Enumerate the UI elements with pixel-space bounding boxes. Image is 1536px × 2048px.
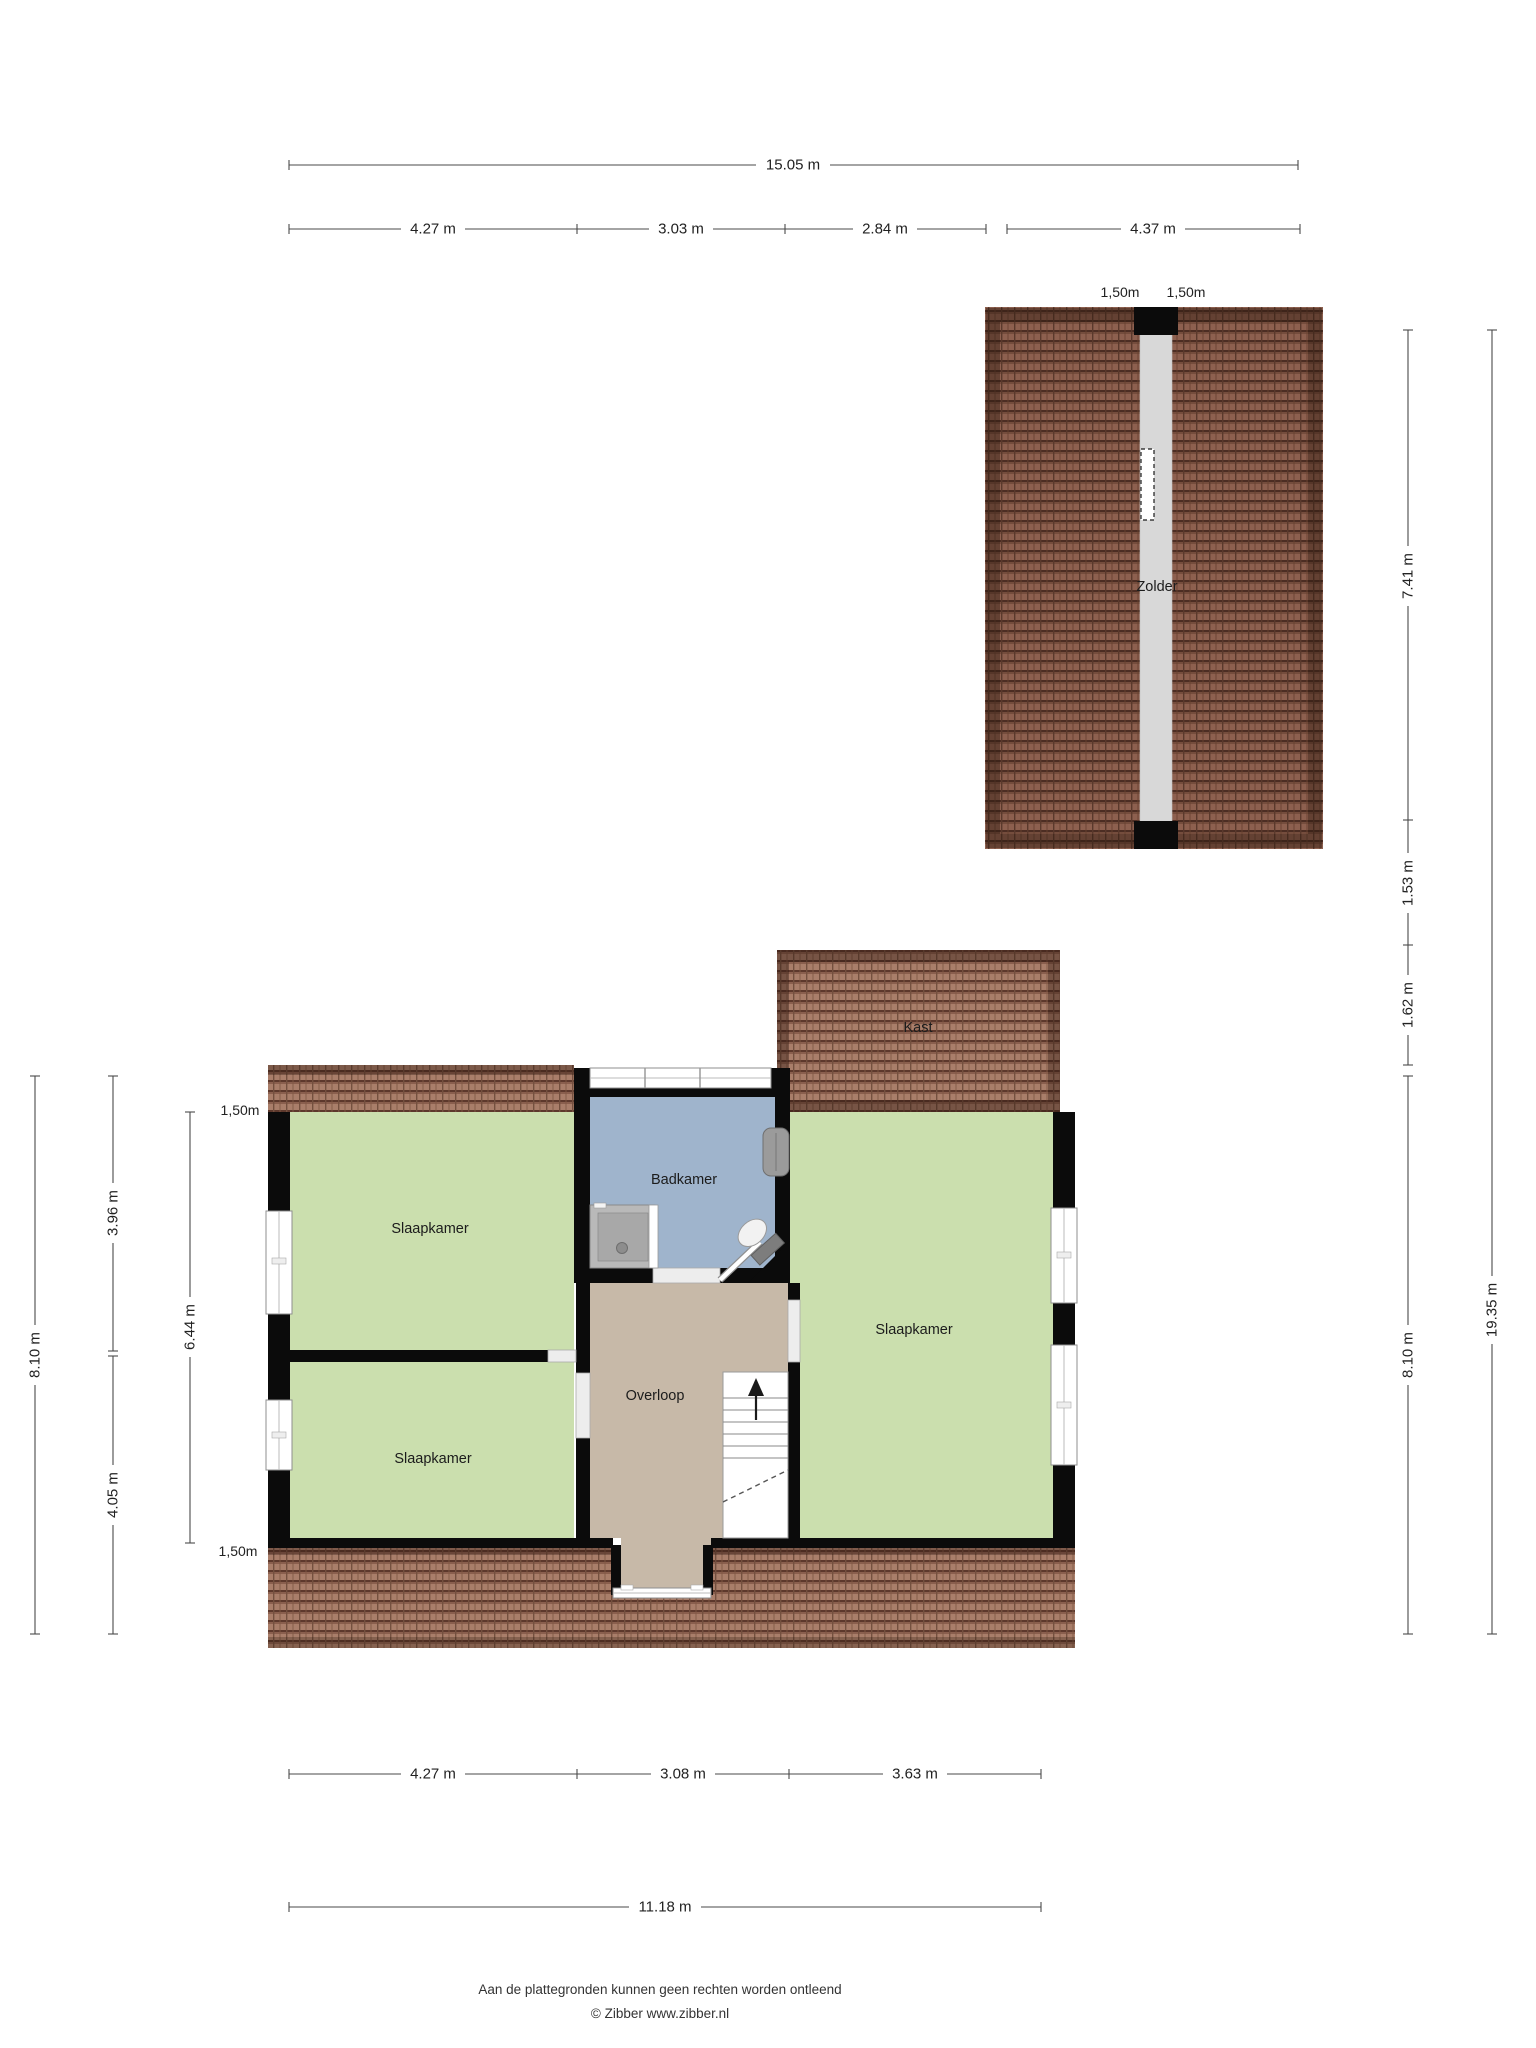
dim-label-left-inner: 6.44 m	[182, 1304, 199, 1350]
roof-window-dashed	[1141, 449, 1154, 520]
window-badkamer-top	[590, 1068, 771, 1088]
room-label-badkamer: Badkamer	[651, 1172, 717, 1188]
footer-disclaimer: Aan de plattegronden kunnen geen rechten…	[478, 1982, 841, 1997]
dim-label-top-seg3: 2.84 m	[862, 221, 908, 238]
window	[266, 1400, 292, 1470]
zolder-walkable-strip	[1140, 333, 1172, 823]
dim-label-bottom-seg1: 4.27 m	[410, 1766, 456, 1783]
wall-segment	[576, 1438, 590, 1545]
floorplan-page: 15.05 m 4.27 m 3.03 m 2.84 m 4.37 m 1,50…	[0, 0, 1536, 2048]
room-label-overloop: Overloop	[626, 1388, 685, 1404]
footer-credit: © Zibber www.zibber.nl	[591, 2006, 729, 2021]
wall-segment	[1053, 1112, 1075, 1208]
shower	[590, 1203, 658, 1268]
wall-segment	[268, 1470, 290, 1545]
wall-segment	[268, 1112, 290, 1211]
dim-label-total-width: 15.05 m	[766, 157, 820, 174]
dimensions-right: 7.41 m 1.53 m 1.62 m 8.10 m 19.35 m	[1399, 330, 1501, 1634]
stairs	[723, 1372, 788, 1538]
dim-label-right-seg2: 1.53 m	[1400, 860, 1417, 906]
zolder-knee-label-right: 1,50m	[1167, 284, 1206, 300]
wall-segment	[576, 1283, 590, 1373]
wall-segment	[268, 1538, 613, 1548]
wall-segment	[574, 1268, 653, 1283]
dim-label-left-mid2: 4.05 m	[105, 1472, 122, 1518]
zolder-wall-stub-bottom	[1134, 821, 1178, 849]
dim-label-right-seg1: 7.41 m	[1400, 553, 1417, 599]
door-opening-overloop-left	[576, 1373, 590, 1438]
wall-segment	[574, 1088, 790, 1097]
room-label-slaapkamer-top-left: Slaapkamer	[391, 1221, 469, 1237]
door-opening-badkamer	[653, 1268, 720, 1283]
radiator	[763, 1128, 789, 1176]
wall-segment	[268, 1314, 290, 1400]
wall-segment	[574, 1097, 590, 1268]
window	[1051, 1208, 1077, 1303]
dimensions-bottom: 4.27 m 3.08 m 3.63 m 11.18 m	[289, 1765, 1041, 1916]
floorplan-drawing: 15.05 m 4.27 m 3.03 m 2.84 m 4.37 m 1,50…	[0, 0, 1536, 2048]
window	[1051, 1345, 1077, 1465]
wall-segment	[1053, 1303, 1075, 1345]
door-opening-bedrooms	[548, 1350, 576, 1362]
dim-label-bottom-seg3: 3.63 m	[892, 1766, 938, 1783]
window	[266, 1211, 292, 1314]
zolder-knee-label-left: 1,50m	[1101, 284, 1140, 300]
wall-segment	[711, 1538, 1075, 1548]
door-opening-overloop-right	[788, 1300, 800, 1362]
first-floor-plan: Kast	[266, 950, 1077, 1648]
room-label-slaapkamer-bottom-left: Slaapkamer	[394, 1451, 472, 1467]
dim-label-bottom-seg2: 3.08 m	[660, 1766, 706, 1783]
footer: Aan de plattegronden kunnen geen rechten…	[478, 1982, 841, 2021]
dim-label-bottom-total: 11.18 m	[638, 1899, 691, 1916]
knee-label-bottom: 1,50m	[219, 1543, 258, 1559]
dim-label-right-seg4: 8.10 m	[1400, 1332, 1417, 1378]
shower-screen	[649, 1205, 658, 1268]
room-label-slaapkamer-right: Slaapkamer	[875, 1322, 953, 1338]
wall-segment	[1053, 1465, 1075, 1545]
room-label-kast: Kast	[903, 1020, 932, 1036]
room-label-zolder: Zolder	[1136, 579, 1177, 595]
dim-label-right-seg3: 1.62 m	[1400, 982, 1417, 1028]
dim-label-left-mid1: 3.96 m	[105, 1190, 122, 1236]
zolder-wall-stub-top	[1134, 307, 1178, 335]
wall-segment	[290, 1350, 548, 1362]
floor-slaapkamer-bottom-left	[290, 1362, 574, 1538]
dim-label-left-outer: 8.10 m	[27, 1332, 44, 1378]
shower-drain	[617, 1243, 628, 1254]
dimensions-top: 15.05 m 4.27 m 3.03 m 2.84 m 4.37 m	[289, 156, 1300, 238]
wall-segment	[788, 1283, 800, 1300]
room-floors	[290, 1097, 1053, 1590]
wall-segment	[788, 1362, 800, 1538]
dimensions-left: 8.10 m 3.96 m 4.05 m 6.44 m 1,50m 1,50m	[26, 1076, 259, 1634]
zolder-plan: 1,50m 1,50m Zolder	[985, 284, 1323, 849]
dim-label-top-seg2: 3.03 m	[658, 221, 704, 238]
dim-label-right-total: 19.35 m	[1484, 1283, 1501, 1337]
dim-label-top-seg4: 4.37 m	[1130, 221, 1176, 238]
knee-label-top: 1,50m	[221, 1102, 260, 1118]
dim-label-top-seg1: 4.27 m	[410, 221, 456, 238]
